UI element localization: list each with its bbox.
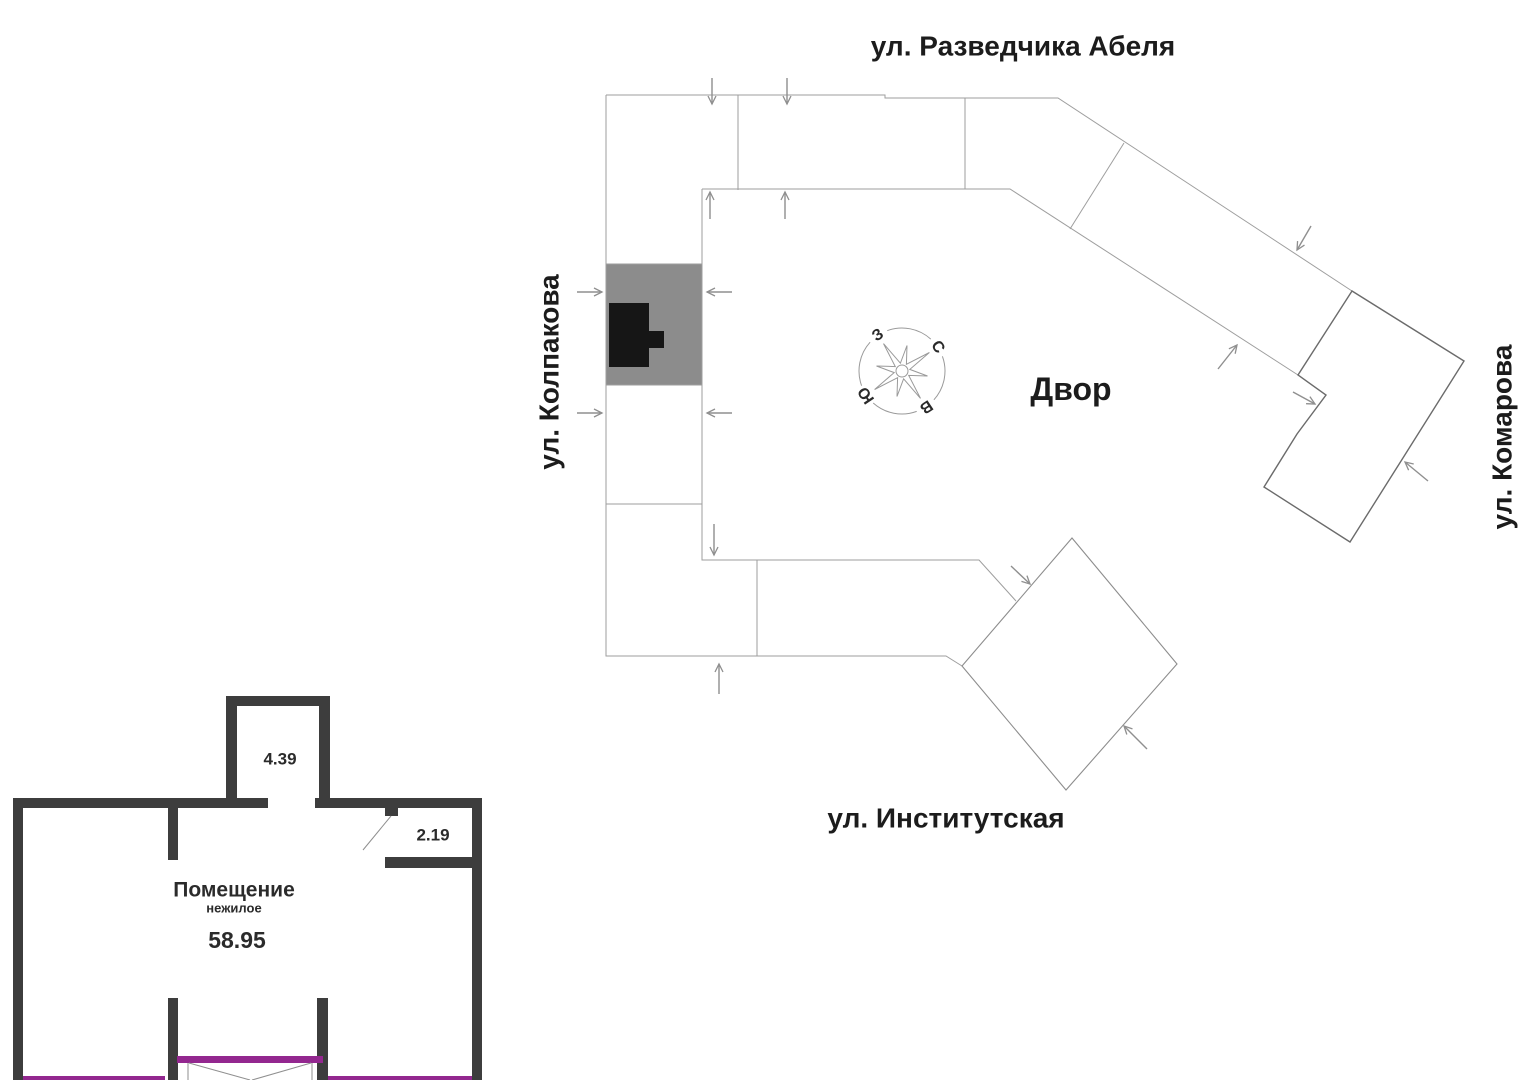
outer-top-edge bbox=[606, 95, 1352, 291]
niche-top-wall bbox=[226, 696, 330, 706]
courtyard-label: Двор bbox=[1030, 371, 1111, 407]
door-swing-line bbox=[189, 1063, 250, 1080]
top-wall-right-segment bbox=[315, 798, 482, 808]
street-label-top: ул. Разведчика Абеля bbox=[871, 31, 1176, 62]
left-outer-wall bbox=[13, 798, 23, 1080]
plans-canvas: С В Ю З ул. Разведчика Абеля ул. Колпако… bbox=[0, 0, 1537, 1080]
niche-dimension-label: 4.39 bbox=[263, 750, 296, 769]
courtyard-top-edge bbox=[702, 189, 1298, 375]
compass-letter-west: З bbox=[869, 326, 887, 346]
partition-stub-bottom-right bbox=[317, 998, 328, 1080]
compass-letter-east: В bbox=[916, 396, 935, 417]
building-outline bbox=[606, 95, 1352, 666]
window-strip-left bbox=[23, 1076, 165, 1080]
compass-rose-icon: С В Ю З bbox=[855, 326, 948, 417]
entry-room-bottom-wall bbox=[385, 857, 482, 868]
entry-dimension-label: 2.19 bbox=[416, 826, 449, 845]
partition-stub-bottom-left bbox=[168, 998, 178, 1080]
glazing-strips bbox=[23, 1056, 472, 1080]
listing-plan-page: С В Ю З ул. Разведчика Абеля ул. Колпако… bbox=[0, 0, 1537, 1080]
window-strip-right bbox=[328, 1076, 472, 1080]
floor-plan: 4.39 2.19 Помещение нежилое 58.95 bbox=[13, 696, 482, 1080]
entrance-arrow-icon bbox=[1124, 726, 1147, 749]
niche-right-wall bbox=[319, 696, 330, 798]
room-subtitle: нежилое bbox=[206, 901, 261, 916]
institutskaya-building-outline bbox=[962, 538, 1177, 790]
entrance-arrow-icon bbox=[1297, 226, 1311, 250]
compass-letter-south: Ю bbox=[855, 383, 878, 406]
street-label-right: ул. Комарова bbox=[1487, 344, 1518, 529]
street-label-left: ул. Колпакова bbox=[534, 274, 565, 470]
niche-left-wall bbox=[226, 696, 237, 798]
top-wall-left-segment bbox=[13, 798, 268, 808]
right-outer-wall bbox=[472, 798, 482, 1080]
entrance-arrow-icon bbox=[1011, 566, 1030, 584]
door-swing-line bbox=[363, 816, 391, 850]
door-hinge-block bbox=[385, 808, 398, 816]
site-plan: С В Ю З ул. Разведчика Абеля ул. Колпако… bbox=[534, 31, 1518, 834]
section-divider bbox=[1070, 143, 1124, 229]
compass-center bbox=[896, 365, 908, 377]
street-label-bottom: ул. Институтская bbox=[827, 803, 1064, 834]
room-area-value: 58.95 bbox=[208, 927, 266, 953]
compass-letter-north: С bbox=[927, 338, 948, 357]
komarova-building-outline bbox=[1264, 291, 1464, 542]
entrance-glazing bbox=[177, 1056, 323, 1063]
room-title: Помещение bbox=[173, 879, 295, 902]
entrance-arrows bbox=[577, 78, 1428, 749]
entrance-arrow-icon bbox=[1405, 462, 1428, 481]
entrance-arrow-icon bbox=[1218, 345, 1237, 369]
entrance-arrow-icon bbox=[1293, 392, 1315, 404]
partition-stub-top bbox=[168, 808, 178, 860]
door-swing-line bbox=[252, 1063, 311, 1080]
